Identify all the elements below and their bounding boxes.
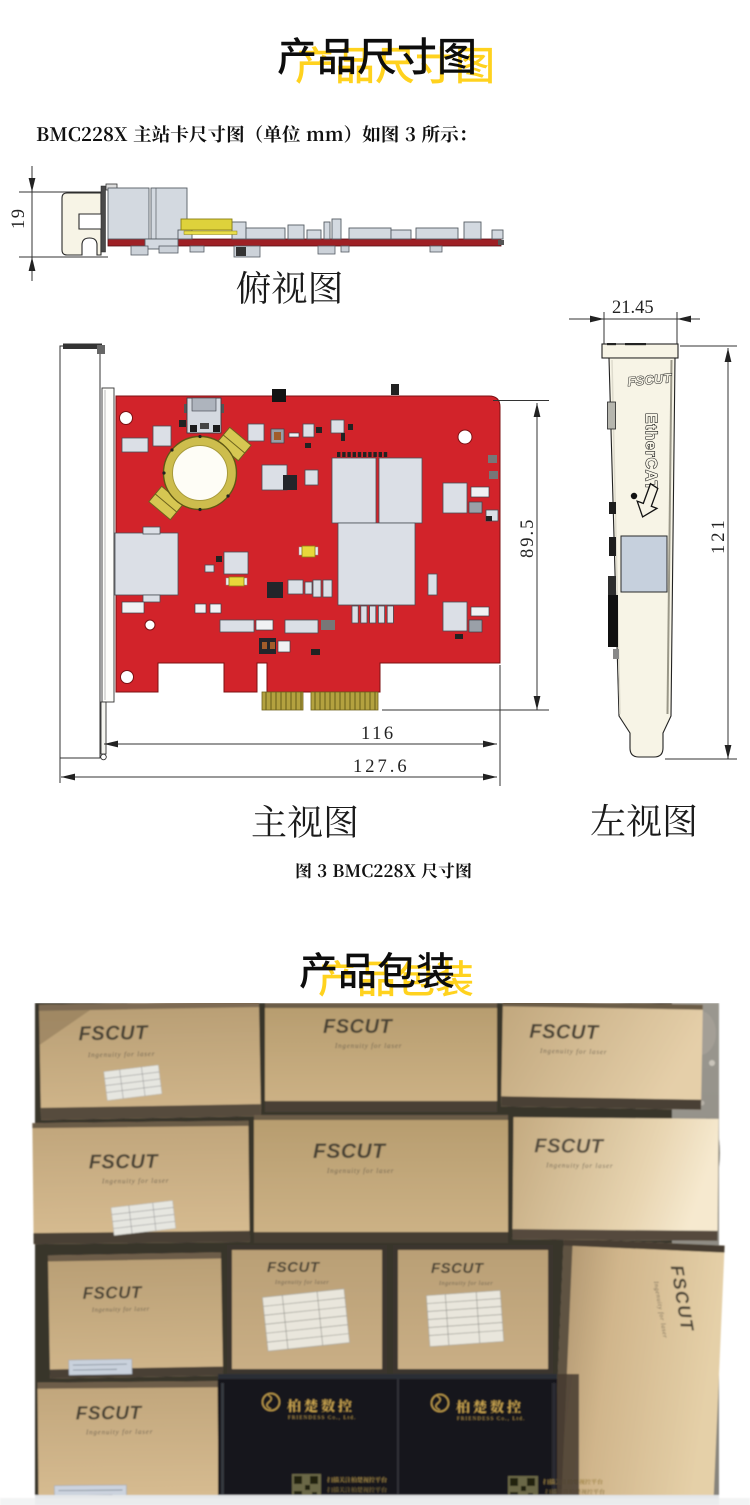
svg-text:127.6: 127.6 [353,757,410,777]
svg-text:FRIENDESS Co., Ltd.: FRIENDESS Co., Ltd. [457,1417,526,1422]
svg-text:FSCUT: FSCUT [529,1021,600,1044]
svg-text:21.45: 21.45 [612,298,654,318]
svg-text:FSCUT: FSCUT [89,1151,160,1174]
svg-text:EtherCAT: EtherCAT [642,413,659,491]
svg-text:Ingenuity for laser: Ingenuity for laser [545,1161,613,1170]
svg-text:Ingenuity for laser: Ingenuity for laser [539,1047,607,1056]
svg-text:Ingenuity for laser: Ingenuity for laser [438,1280,493,1287]
svg-text:FSCUT: FSCUT [323,1016,393,1038]
svg-text:121: 121 [709,517,729,554]
svg-text:89.5: 89.5 [518,518,538,558]
svg-text:FSCUT: FSCUT [82,1283,143,1303]
svg-text:Ingenuity for laser: Ingenuity for laser [274,1279,329,1286]
svg-text:FSCUT: FSCUT [267,1259,321,1276]
svg-text:FSCUT: FSCUT [78,1022,149,1045]
svg-text:FSCUT: FSCUT [76,1403,143,1425]
svg-text:Ingenuity for laser: Ingenuity for laser [334,1042,402,1050]
svg-text:FRIENDESS Co., Ltd.: FRIENDESS Co., Ltd. [288,1416,357,1421]
svg-text:Ingenuity for laser: Ingenuity for laser [326,1167,394,1175]
svg-text:FSCUT: FSCUT [313,1140,387,1163]
svg-text:FSCUT: FSCUT [431,1260,485,1277]
svg-text:FSCUT: FSCUT [534,1135,605,1158]
svg-text:Ingenuity for laser: Ingenuity for laser [85,1428,153,1437]
svg-text:Ingenuity for laser: Ingenuity for laser [91,1306,150,1314]
svg-text:Ingenuity for laser: Ingenuity for laser [87,1050,155,1059]
svg-text:19: 19 [9,208,29,230]
svg-text:116: 116 [361,724,396,744]
svg-text:Ingenuity for laser: Ingenuity for laser [101,1177,169,1186]
